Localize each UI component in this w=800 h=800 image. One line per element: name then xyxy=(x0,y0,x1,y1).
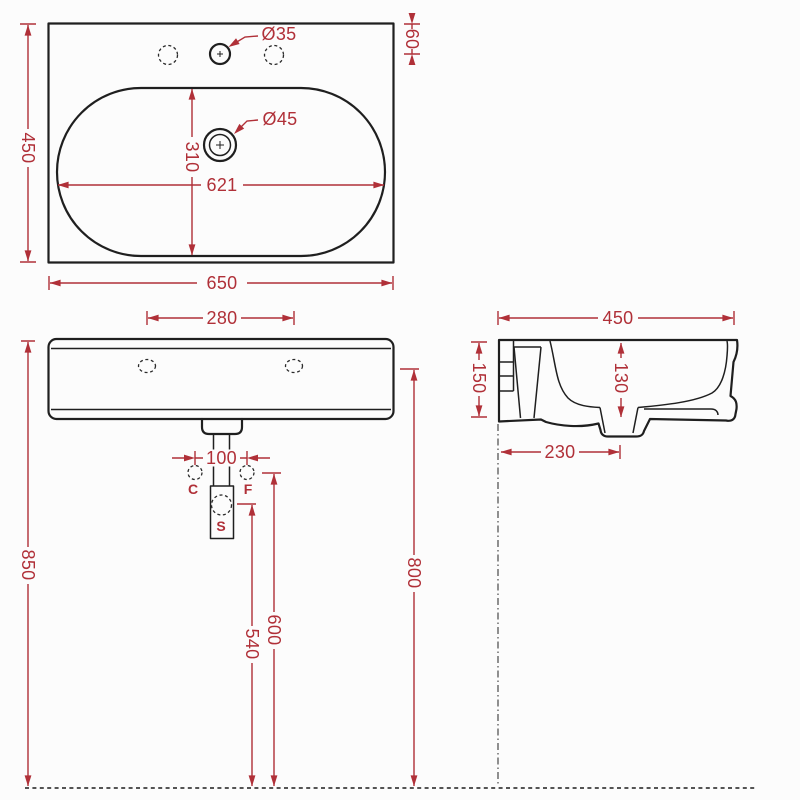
callout-tap-diameter: Ø35 xyxy=(227,24,297,50)
dim-edge-height-150: 150 xyxy=(469,342,489,417)
dim-siphon-height-540: 540 xyxy=(237,504,262,786)
side-overflow-channel xyxy=(499,341,514,391)
dim-text-450-top: 450 xyxy=(18,133,38,164)
top-view: 450 650 621 310 60 xyxy=(18,13,422,293)
dim-text-450-side: 450 xyxy=(603,308,634,328)
callout-drain-diameter: Ø45 xyxy=(232,109,298,136)
front-rim-lines xyxy=(51,349,391,410)
tap-hole-optional-right xyxy=(265,46,284,65)
dim-text-150: 150 xyxy=(469,363,489,394)
siphon-outlet-hole xyxy=(212,495,232,515)
dim-bowl-inner-depth-130: 130 xyxy=(611,343,631,418)
dim-fixing-holes-280: 280 xyxy=(147,308,294,328)
basin-outline xyxy=(57,88,385,256)
dim-text-dia45: Ø45 xyxy=(263,109,298,129)
top-view-outline xyxy=(49,24,394,263)
dim-bowl-depth-310: 310 xyxy=(182,89,202,256)
dim-width-650: 650 xyxy=(49,273,393,293)
fixing-hole-right xyxy=(286,360,303,373)
dim-side-depth-450: 450 xyxy=(498,308,734,328)
label-c: C xyxy=(188,481,198,497)
drain-trap xyxy=(202,419,242,434)
dim-text-100: 100 xyxy=(206,448,237,468)
drawing-page: 450 650 621 310 60 xyxy=(0,0,800,800)
dim-text-621: 621 xyxy=(207,175,238,195)
dim-text-850: 850 xyxy=(18,550,38,581)
side-tap-block xyxy=(514,347,541,418)
drain-center-mark xyxy=(216,141,224,149)
front-view: 280 100 C F S 850 800 xyxy=(18,308,424,786)
dim-text-230: 230 xyxy=(545,442,576,462)
dim-bowl-width-621: 621 xyxy=(58,175,385,195)
dim-text-dia35: Ø35 xyxy=(262,24,297,44)
tap-hole-center-mark xyxy=(217,51,223,57)
dim-text-800: 800 xyxy=(404,558,424,589)
dim-drain-to-wall-230: 230 xyxy=(501,442,620,462)
fixing-hole-left xyxy=(139,360,156,373)
supply-hole-c xyxy=(188,466,202,480)
label-f: F xyxy=(244,481,253,497)
dim-rim-height-850: 850 xyxy=(18,341,38,786)
dim-supply-spacing-100: 100 xyxy=(172,448,270,468)
dim-tap-offset-60: 60 xyxy=(402,13,422,65)
dim-depth-450: 450 xyxy=(18,24,38,262)
dim-supply-height-600: 600 xyxy=(262,473,284,786)
tap-hole-optional-left xyxy=(159,46,178,65)
dim-text-650: 650 xyxy=(207,273,238,293)
supply-hole-f xyxy=(240,466,254,480)
dim-text-60: 60 xyxy=(402,29,422,50)
dim-text-310: 310 xyxy=(182,142,202,173)
label-s: S xyxy=(216,518,225,534)
dim-text-130: 130 xyxy=(611,363,631,394)
dim-text-600: 600 xyxy=(264,615,284,646)
dim-text-280: 280 xyxy=(207,308,238,328)
dim-fixing-height-800: 800 xyxy=(400,369,424,786)
side-view: 450 150 130 230 xyxy=(469,308,737,786)
front-body-outline xyxy=(49,339,394,419)
dim-text-540: 540 xyxy=(242,629,262,660)
technical-drawing: 450 650 621 310 60 xyxy=(0,0,800,800)
